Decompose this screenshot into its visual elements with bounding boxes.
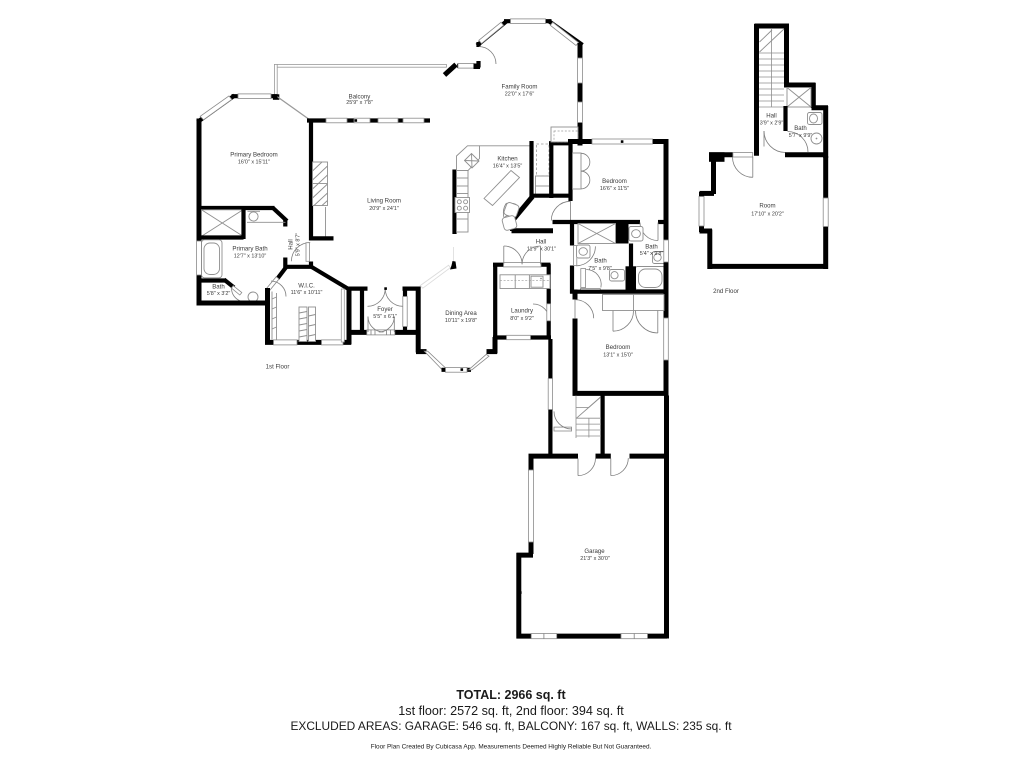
svg-text:2nd Floor: 2nd Floor [713,288,739,295]
svg-text:Bath: Bath [212,284,225,291]
svg-text:3'9" x 2'9": 3'9" x 2'9" [760,121,784,127]
svg-text:Hall: Hall [766,113,777,120]
svg-text:16'6" x 11'5": 16'6" x 11'5" [600,186,629,192]
svg-text:22'0" x 17'6": 22'0" x 17'6" [505,92,535,98]
svg-text:7'5" x 9'8": 7'5" x 9'8" [588,266,612,272]
svg-text:12'7" x 13'10": 12'7" x 13'10" [234,254,267,260]
svg-text:Family Room: Family Room [502,84,538,91]
svg-text:Dining Area: Dining Area [445,310,477,317]
svg-text:1st Floor: 1st Floor [266,364,290,371]
svg-text:5'7" x 9'9": 5'7" x 9'9" [789,133,813,139]
svg-text:Primary Bedroom: Primary Bedroom [230,152,277,159]
svg-text:10'11" x 19'8": 10'11" x 19'8" [445,318,477,324]
svg-text:20'9" x 24'1": 20'9" x 24'1" [369,206,399,212]
svg-text:16'0" x 15'11": 16'0" x 15'11" [238,160,270,166]
svg-text:25'9" x 7'8": 25'9" x 7'8" [346,100,373,106]
svg-text:Foyer: Foyer [377,306,393,313]
svg-text:Room: Room [759,203,775,210]
svg-text:Bedroom: Bedroom [606,344,631,351]
svg-text:Bath: Bath [794,125,807,132]
svg-text:EXCLUDED AREAS: GARAGE: 546 sq: EXCLUDED AREAS: GARAGE: 546 sq. ft, BALC… [290,719,732,733]
svg-text:Laundry: Laundry [511,308,534,315]
svg-text:Bath: Bath [645,244,658,251]
svg-text:Bath: Bath [594,258,607,265]
svg-text:Hall: Hall [288,239,295,250]
svg-text:17'10" x 20'2": 17'10" x 20'2" [751,212,784,218]
svg-text:16'4" x 13'5": 16'4" x 13'5" [493,164,523,170]
svg-text:Garage: Garage [584,548,605,555]
svg-text:Primary Bath: Primary Bath [232,246,267,253]
svg-text:5'9" x 8'7": 5'9" x 8'7" [296,233,302,257]
svg-text:11'9" x 30'1": 11'9" x 30'1" [527,247,556,253]
svg-text:5'4" x 9'8": 5'4" x 9'8" [640,251,664,257]
svg-text:Living Room: Living Room [367,198,401,205]
svg-text:TOTAL: 2966 sq. ft: TOTAL: 2966 sq. ft [456,688,566,702]
svg-text:5'8" x 3'2": 5'8" x 3'2" [207,291,231,297]
svg-text:5'5" x 6'1": 5'5" x 6'1" [373,314,397,320]
svg-text:Floor Plan Created By Cubicasa: Floor Plan Created By Cubicasa App. Meas… [371,744,652,751]
svg-text:Bedroom: Bedroom [602,178,627,185]
svg-text:Hall: Hall [536,239,547,246]
svg-text:Kitchen: Kitchen [497,156,517,163]
svg-text:W.I.C.: W.I.C. [298,283,315,290]
svg-text:13'1" x 15'0": 13'1" x 15'0" [603,353,633,359]
svg-text:11'6" x 10'11": 11'6" x 10'11" [291,290,323,296]
svg-text:1st floor: 2572 sq. ft, 2nd fl: 1st floor: 2572 sq. ft, 2nd floor: 394 s… [398,704,624,718]
svg-text:8'0" x 9'2": 8'0" x 9'2" [510,316,534,322]
svg-text:21'3" x 30'0": 21'3" x 30'0" [580,556,610,562]
